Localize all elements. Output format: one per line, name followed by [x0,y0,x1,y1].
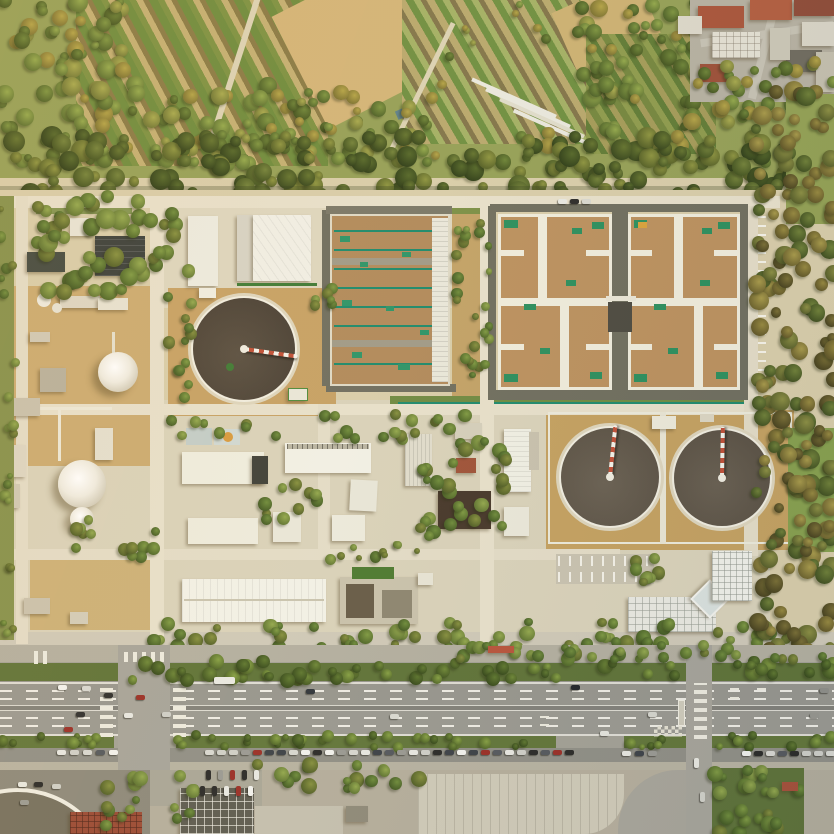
tree [411,771,427,787]
parking-lot [255,806,343,834]
parked-car [236,786,241,796]
tree [719,810,734,825]
parking-lot [804,770,834,834]
tree [302,757,318,773]
parked-car [224,786,229,796]
aerial-photo [0,0,834,834]
tree [379,765,391,777]
tree [186,784,199,797]
building [346,806,368,822]
tree [184,808,194,818]
cross-road [686,770,712,834]
tree [732,826,747,834]
parked-car [212,786,217,796]
car [34,782,43,787]
car [700,792,705,802]
car [20,800,29,805]
parked-car [242,770,247,780]
car [52,784,61,789]
tree [252,759,263,770]
tree [707,766,723,782]
tree [743,780,756,793]
parked-car [218,770,223,780]
tree [349,782,360,793]
red-roof-shed [782,782,798,791]
tree [758,773,767,782]
tree [117,812,127,822]
tree [712,825,727,834]
parked-car [248,786,253,796]
parked-car [254,770,259,780]
parked-car [206,770,211,780]
parked-car [230,770,235,780]
tree [100,820,111,831]
tree [301,778,317,794]
tree [125,805,135,815]
tree [767,787,778,798]
tree [770,817,782,829]
parked-car [200,786,205,796]
car [18,782,27,787]
tree [389,777,402,790]
tree [133,771,148,786]
tree [742,765,753,776]
parking-lot [418,774,624,834]
city-edge-region [0,0,834,834]
